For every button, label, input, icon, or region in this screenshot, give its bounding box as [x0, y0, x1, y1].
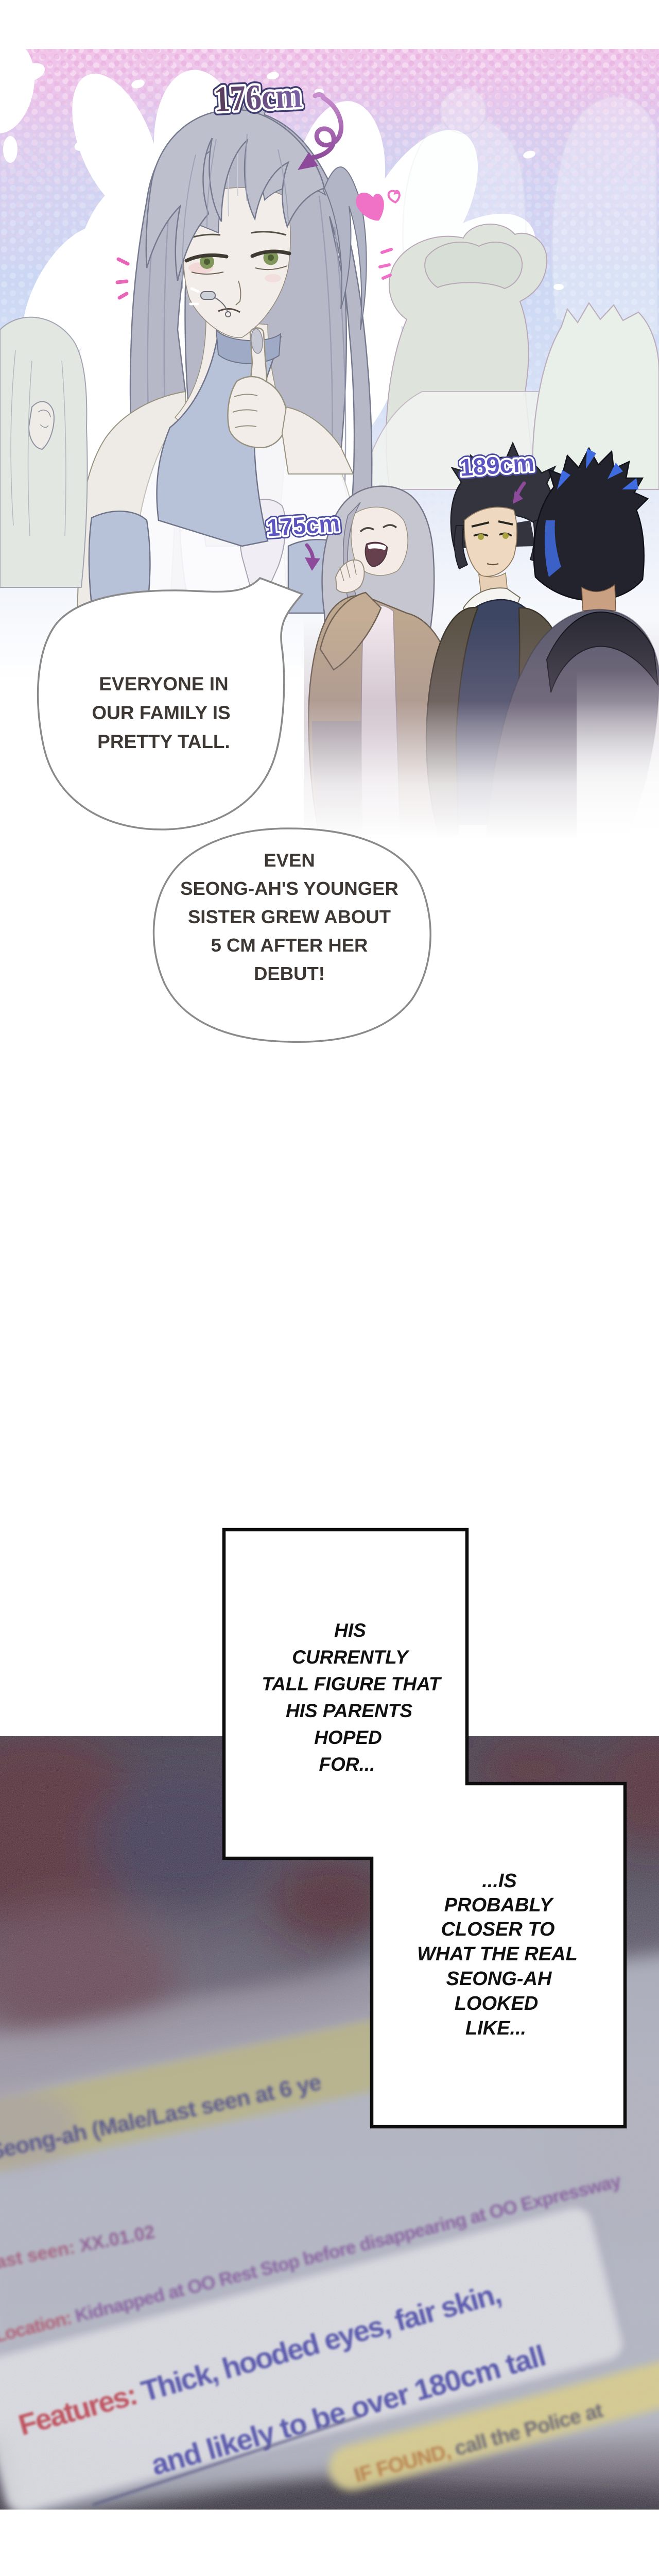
svg-text:SISTER GREW ABOUT: SISTER GREW ABOUT	[188, 906, 391, 927]
svg-text:SEONG-AH'S YOUNGER: SEONG-AH'S YOUNGER	[180, 878, 398, 899]
svg-text:FOR...: FOR...	[319, 1754, 375, 1775]
svg-text:PRETTY TALL.: PRETTY TALL.	[97, 731, 230, 752]
svg-text:LOOKED: LOOKED	[455, 1993, 539, 2014]
svg-text:WHAT THE REAL: WHAT THE REAL	[417, 1943, 578, 1965]
svg-text:PROBABLY: PROBABLY	[444, 1894, 554, 1916]
svg-text:DEBUT!: DEBUT!	[254, 963, 325, 984]
svg-text:EVERYONE IN: EVERYONE IN	[99, 673, 229, 694]
svg-text:EVEN: EVEN	[264, 850, 315, 871]
svg-text:...IS: ...IS	[482, 1870, 517, 1892]
svg-text:OUR FAMILY IS: OUR FAMILY IS	[92, 702, 230, 723]
svg-text:175cm: 175cm	[266, 509, 340, 541]
svg-text:TALL FIGURE THAT: TALL FIGURE THAT	[262, 1673, 442, 1694]
svg-text:HOPED: HOPED	[314, 1727, 382, 1748]
svg-text:SEONG-AH: SEONG-AH	[446, 1968, 552, 1990]
svg-text:CLOSER TO: CLOSER TO	[441, 1919, 555, 1940]
svg-text:176cm: 176cm	[213, 76, 303, 120]
svg-text:5 CM AFTER HER: 5 CM AFTER HER	[211, 935, 368, 956]
svg-text:HIS: HIS	[334, 1620, 366, 1641]
svg-text:LIKE...: LIKE...	[465, 2018, 526, 2039]
svg-text:HIS PARENTS: HIS PARENTS	[286, 1700, 412, 1721]
svg-text:CURRENTLY: CURRENTLY	[292, 1647, 410, 1668]
svg-text:189cm: 189cm	[459, 449, 535, 481]
